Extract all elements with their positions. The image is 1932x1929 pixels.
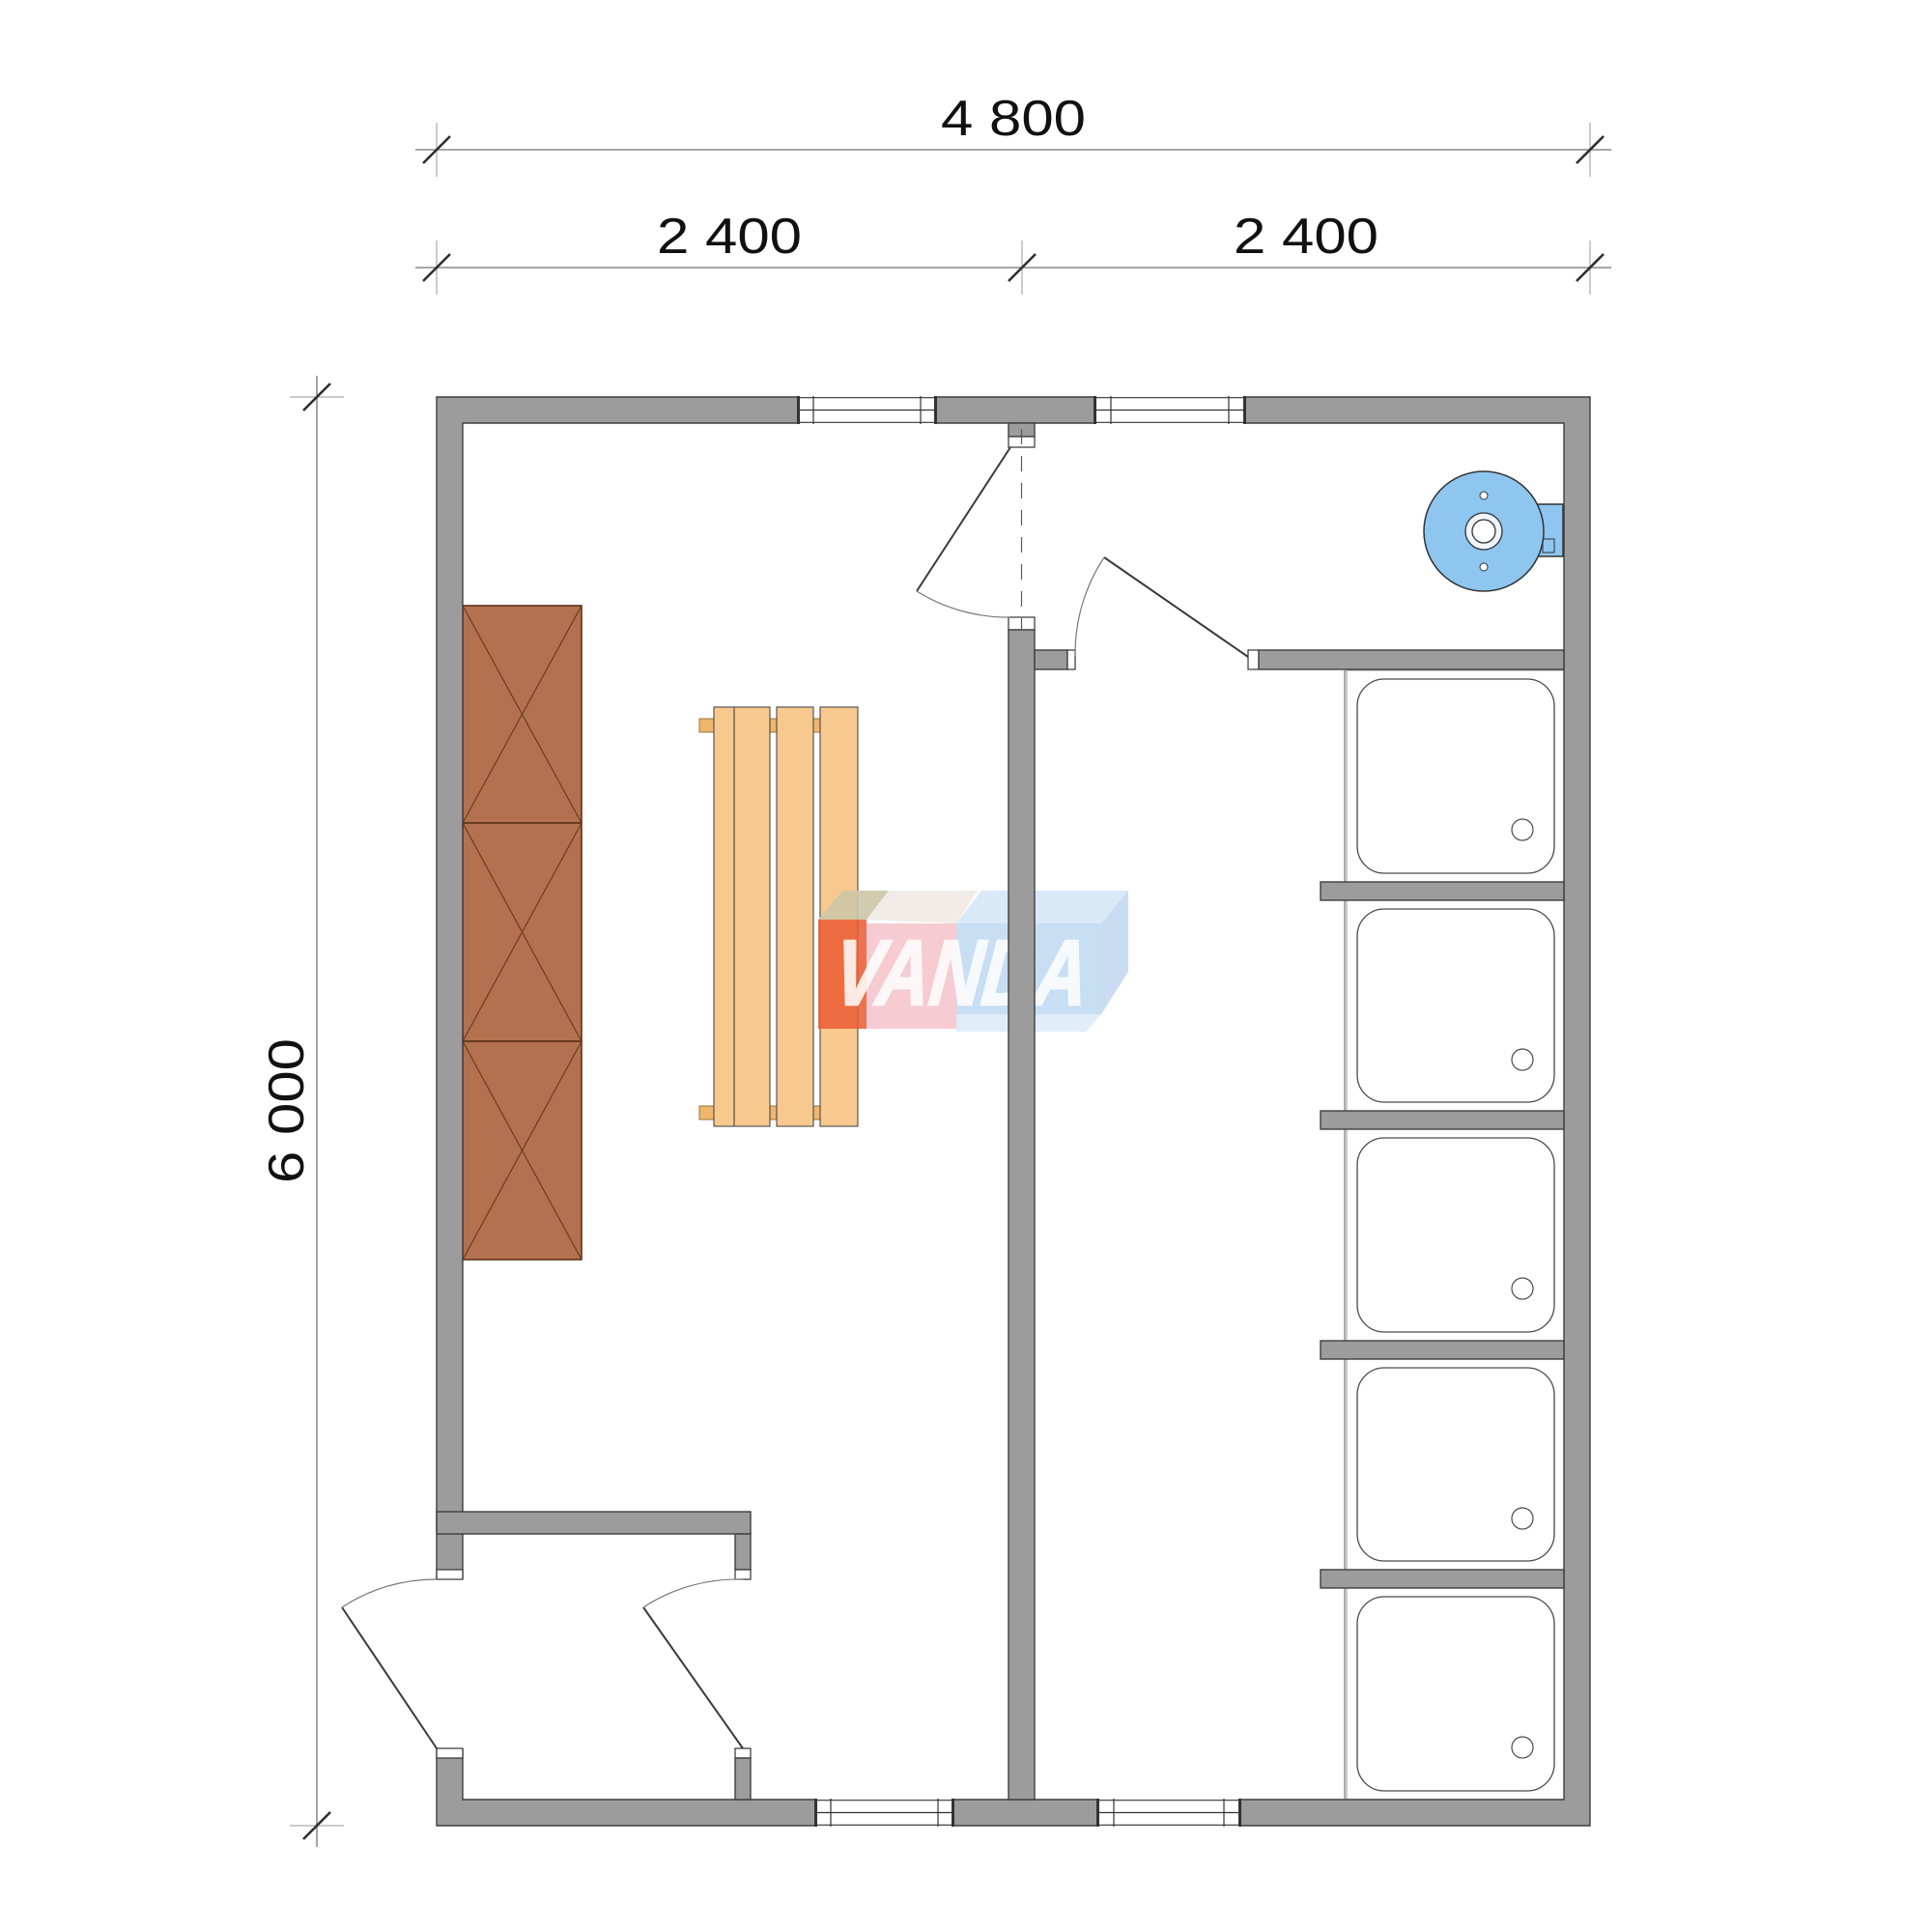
vestibule-side-wall	[735, 1534, 751, 1570]
bench-slat	[714, 707, 734, 1126]
heater-vent-hole	[1472, 520, 1495, 543]
door-frame	[735, 1748, 751, 1758]
floor-plan-page: 4 800 2 400 2 400 6 000	[0, 0, 1932, 1929]
tray-cell	[1347, 900, 1564, 1111]
window-bottom-left	[814, 1799, 954, 1827]
door-opening	[436, 1579, 465, 1748]
vestibule-walls	[437, 1512, 751, 1800]
water-heater	[1424, 471, 1563, 591]
shower-tray	[1347, 900, 1564, 1111]
door-frame	[735, 1570, 751, 1579]
vestibule-door	[643, 1579, 743, 1748]
shower-tray	[1347, 1359, 1564, 1570]
heater-room-door	[1075, 557, 1248, 657]
vestibule-side-wall	[735, 1758, 751, 1800]
door-frame	[1248, 650, 1259, 669]
door-leaf	[643, 1607, 743, 1748]
dim-side-height: 6 000	[259, 376, 344, 1847]
door-swing-arc	[342, 1579, 437, 1607]
bench-slat	[777, 707, 813, 1126]
wall-segment	[1009, 630, 1035, 1800]
tray-cell	[1347, 670, 1564, 882]
vanda-watermark: VANDA	[818, 891, 1128, 1032]
floor-plan-drawing: 4 800 2 400 2 400 6 000	[0, 0, 1932, 1929]
tray-drain	[1512, 1508, 1533, 1529]
door-leaf	[917, 447, 1010, 591]
heater-screw	[1480, 563, 1488, 571]
window-top-right	[1094, 396, 1246, 424]
heater-room-wall	[1035, 650, 1564, 669]
dim-label-left-width: 2 400	[657, 209, 802, 265]
heater-screw	[1480, 492, 1488, 499]
entrance-door	[342, 1579, 437, 1748]
door-frame	[437, 1570, 463, 1579]
door-leaf	[342, 1607, 437, 1748]
window-bottom-right	[1096, 1799, 1241, 1827]
wall-segment	[1259, 650, 1564, 669]
dim-top-halves: 2 400 2 400	[415, 209, 1611, 295]
shower-partition	[1321, 1341, 1564, 1359]
bench-slat	[734, 707, 770, 1126]
shower-tray	[1347, 1129, 1564, 1341]
tray-cell	[1347, 1588, 1564, 1800]
door-frame	[1067, 650, 1075, 669]
tray-drain	[1512, 1737, 1533, 1758]
shower-partition	[1321, 882, 1564, 900]
shower-partition	[1321, 1570, 1564, 1588]
tray-drain	[1512, 819, 1533, 840]
tray-cell	[1347, 1359, 1564, 1570]
door-swing-arc	[1075, 557, 1104, 656]
dim-label-total-width: 4 800	[941, 91, 1086, 147]
sauna-room-door	[917, 447, 1010, 617]
shower-partition	[1321, 1111, 1564, 1129]
shower-tray	[1347, 670, 1564, 882]
vestibule-top-wall	[437, 1512, 751, 1534]
door-swing-arc	[643, 1579, 743, 1607]
shower-tray	[1347, 1588, 1564, 1800]
center-partition-wall	[1009, 423, 1035, 1800]
door-swing-arc	[917, 591, 1010, 617]
tray-cell	[1347, 1129, 1564, 1341]
tray-drain	[1512, 1049, 1533, 1070]
logo-wordmark: VANDA	[830, 922, 1094, 1025]
wall-segment	[1035, 650, 1067, 669]
shower-trays	[1347, 670, 1564, 1800]
dim-top-total: 4 800	[415, 91, 1611, 177]
entrance-door-opening	[436, 1570, 465, 1758]
dim-label-right-width: 2 400	[1234, 209, 1378, 265]
logo-blue-top-face	[956, 891, 1128, 923]
door-frame	[437, 1748, 463, 1758]
dim-label-height: 6 000	[259, 1038, 315, 1183]
door-leaf	[1104, 557, 1248, 657]
window-top-left	[797, 396, 937, 424]
cabinet	[463, 606, 582, 1260]
tray-drain	[1512, 1278, 1533, 1299]
